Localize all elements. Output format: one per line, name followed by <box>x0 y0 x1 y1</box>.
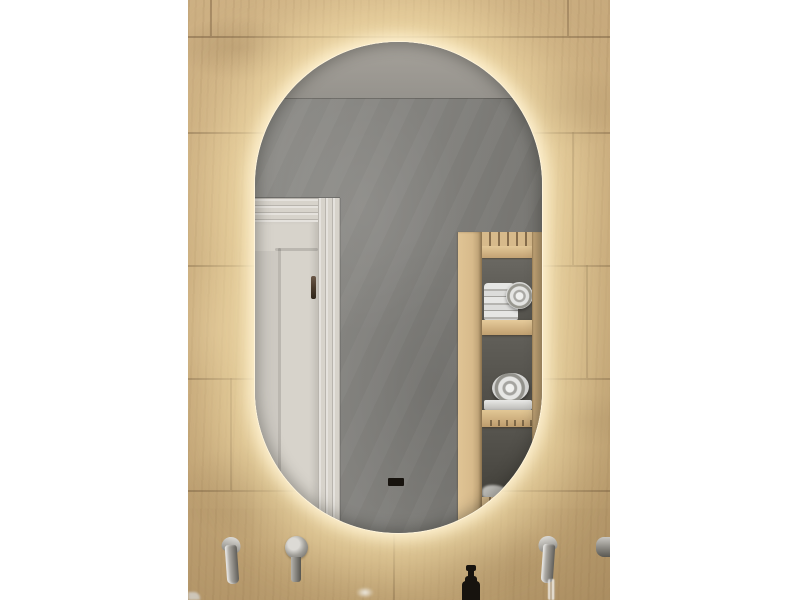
shelf-slats <box>482 497 532 533</box>
right-wall-spout <box>536 536 558 584</box>
left-mixer-stem <box>291 557 301 582</box>
shelf-post <box>458 232 482 533</box>
shelf-slats <box>482 232 532 246</box>
oval-mirror <box>255 42 542 533</box>
plank-joint <box>567 0 569 36</box>
far-right-chrome-fixture <box>596 537 610 557</box>
soap-dispenser-pump-stem <box>468 570 474 578</box>
sink-highlight <box>356 587 374 598</box>
reflected-door-panel <box>255 251 278 533</box>
reflected-dark-object <box>388 478 404 486</box>
plank-joint <box>210 0 212 36</box>
plank-seam <box>188 36 610 38</box>
reflected-door-casing <box>318 198 340 533</box>
left-wall-spout <box>220 537 242 585</box>
plank-joint <box>572 132 574 265</box>
shelf-post <box>532 232 542 533</box>
shelf-rail <box>482 246 532 258</box>
reflected-ceiling <box>255 42 542 98</box>
running-water <box>548 579 555 600</box>
product-photo-canvas <box>0 0 800 600</box>
soap-dispenser-pump-cap <box>466 565 476 571</box>
plank-joint <box>586 265 588 378</box>
soap-dispenser-body <box>462 581 480 600</box>
bathroom-photo <box>188 0 610 600</box>
folded-towel <box>484 400 532 410</box>
rolled-towel <box>506 282 533 309</box>
corner-object <box>188 592 200 600</box>
spout-body <box>541 544 556 584</box>
left-mixer-handle <box>285 536 308 559</box>
plank-joint <box>230 378 232 490</box>
door-panel-groove <box>275 248 318 251</box>
door-panel-groove <box>278 248 281 533</box>
reflected-door-handle <box>311 276 316 299</box>
